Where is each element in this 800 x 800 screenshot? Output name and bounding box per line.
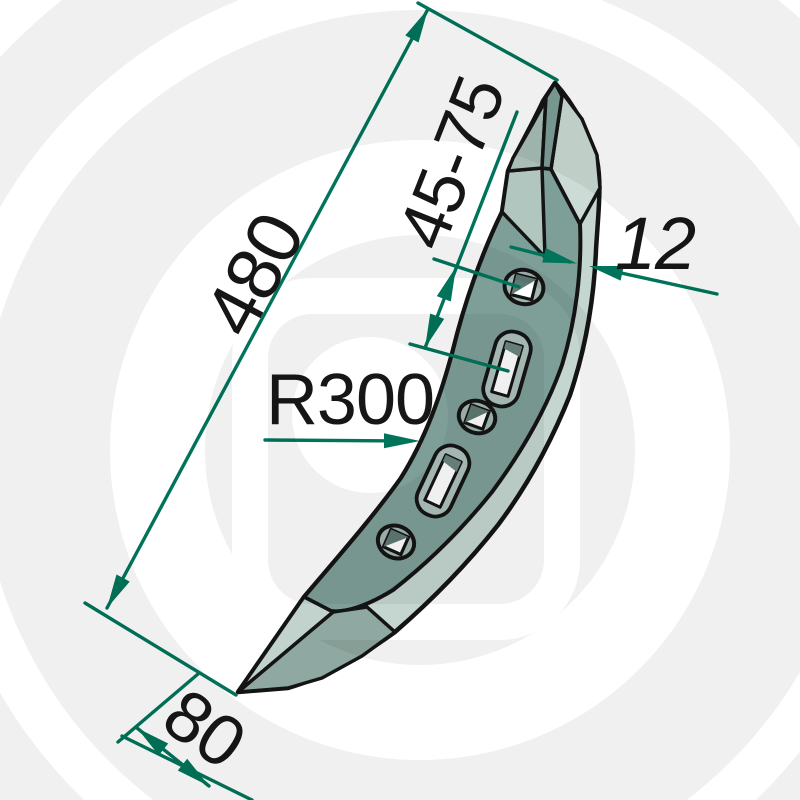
dimension-label-radius: R300 <box>266 364 434 436</box>
dim-arrow <box>405 9 428 43</box>
dim-arrow <box>425 314 444 349</box>
dim-arrow <box>437 267 456 302</box>
technical-drawing-page: 480 45-75 12 R300 80 <box>0 0 800 800</box>
dim-arrow <box>107 575 130 609</box>
dimension-label-thickness: 12 <box>615 207 695 281</box>
